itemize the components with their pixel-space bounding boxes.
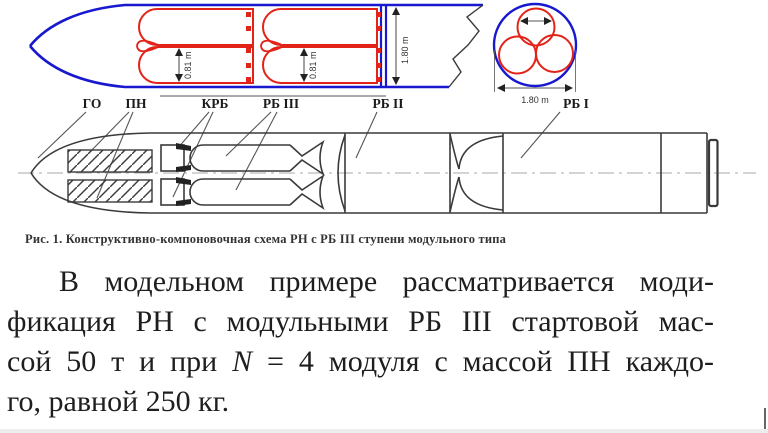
label-krb: КРБ [202,96,229,111]
label-pn: ПН [125,96,147,111]
module-circle [518,9,555,46]
module-pair-2: 0.81 m [261,9,381,83]
label-rb3: РБ III [263,96,299,111]
body-text-line: сой 50 т и при N = 4 модуля с массой ПН … [7,342,714,382]
document-page: 0.81 m 0.81 m 1.80 m [0,0,768,433]
dimension-label: 1.80 m [400,36,410,64]
body-paragraph: В модельном примере рассматривается моди… [7,262,714,422]
fairing-outline-top [30,5,483,46]
variable-n: N [232,345,252,378]
label-go: ГО [83,96,102,111]
body-text-segment: = 4 модуля с массой ПН каждо- [252,345,714,378]
cross-section-view: 1.80 m [494,4,576,105]
figure-caption: Рис. 1. Конструктивно-компоновочная схем… [25,231,745,247]
body-text-line: фикация РН с модульными РБ III стартовой… [7,302,714,342]
body-text-line: го, равной 250 кг. [7,382,714,422]
dimension-label: 0.81 m [183,51,193,79]
body-text-segment: сой 50 т и при [7,345,232,378]
module-pair-1: 0.81 m [137,9,253,83]
rb2-section [338,133,503,213]
page-bottom-strip [0,429,768,433]
rocket-side-view [18,133,756,213]
body-text-line: В модельном примере рассматривается моди… [7,262,714,302]
label-rb1: РБ I [563,96,589,111]
payload-block [68,180,152,202]
payload-block [68,150,152,172]
krb-units [161,143,191,206]
label-rb2: РБ II [372,96,403,111]
dimension-label: 0.81 m [308,51,318,79]
figure-drawing: 0.81 m 0.81 m 1.80 m [0,0,768,228]
page-edge-mark [764,408,766,429]
break-line [449,5,483,87]
module-circle [499,37,536,74]
module-circle [536,35,573,72]
fairing-side-view: 0.81 m 0.81 m 1.80 m [30,5,483,96]
dimension-label: 1.80 m [521,95,549,105]
